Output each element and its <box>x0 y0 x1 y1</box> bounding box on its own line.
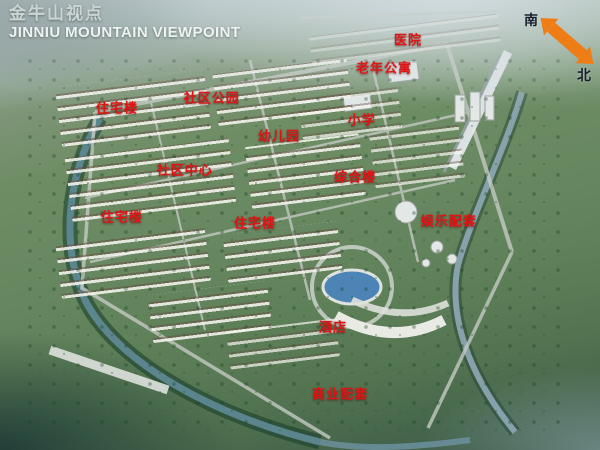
map-label-entertainment: 娱乐配套 <box>421 211 477 230</box>
map-label-community-center: 社区中心 <box>157 160 213 179</box>
compass-north-label: 北 <box>577 65 591 85</box>
map-label-primary-school: 小学 <box>348 109 376 128</box>
map-label-community-park: 社区公园 <box>184 88 240 107</box>
map-label-kindergarten: 幼儿园 <box>258 126 300 145</box>
map-label-commercial: 商业配套 <box>312 383 368 402</box>
map-label-hotel: 酒店 <box>319 316 347 335</box>
central-pond <box>323 270 381 304</box>
page-title-english: JINNIU MOUNTAIN VIEWPOINT <box>9 24 240 41</box>
map-label-hospital: 医院 <box>394 30 422 49</box>
map-label-residential-2: 住宅楼 <box>101 207 143 226</box>
building-cluster <box>369 123 465 189</box>
map-label-complex-building: 综合楼 <box>334 166 376 185</box>
page-title-chinese: 金牛山视点 <box>9 4 240 24</box>
river-bottom <box>320 440 470 447</box>
aerial-masterplan-view: 医院 老年公寓 住宅楼 社区公园 幼儿园 小学 社区中心 综合楼 住宅楼 住宅楼… <box>0 0 600 450</box>
map-label-senior-apartments: 老年公寓 <box>356 58 412 77</box>
map-label-residential-1: 住宅楼 <box>96 98 138 117</box>
hotel-building-curve-1 <box>336 316 444 333</box>
title-block: 金牛山视点 JINNIU MOUNTAIN VIEWPOINT <box>9 4 240 41</box>
map-label-residential-3: 住宅楼 <box>234 212 276 231</box>
